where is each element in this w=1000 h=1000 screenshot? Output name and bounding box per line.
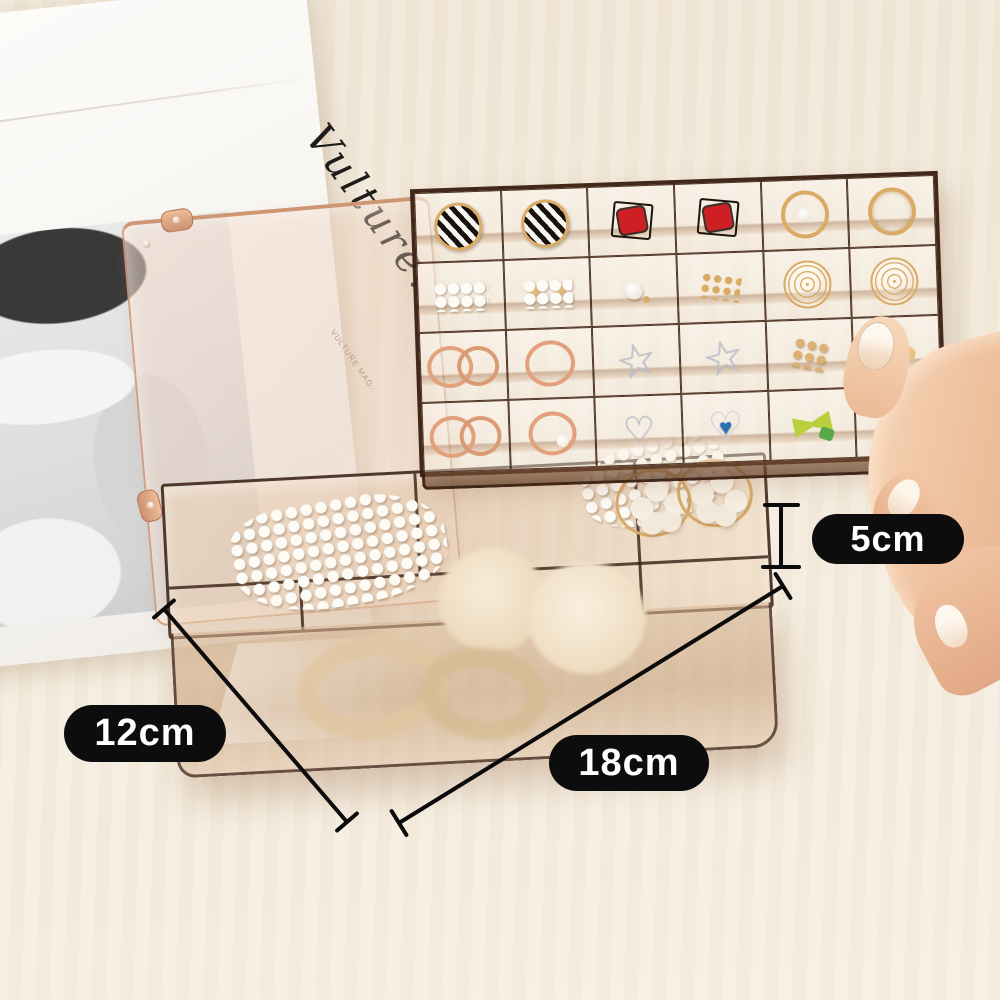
tray-cell (681, 391, 770, 464)
tray-cell (592, 324, 681, 397)
striped-circle-earring (502, 188, 589, 259)
gold-hoop-earring (848, 176, 935, 247)
gold-hoop-pearl-earring (762, 179, 849, 250)
rose-gold-hoops (422, 401, 509, 472)
rose-gold-hoop (507, 328, 594, 399)
red-square-earring (675, 182, 762, 253)
tray-cell (419, 330, 508, 403)
blue-gem-heart-earring (682, 392, 769, 463)
hinge-screw-icon (172, 216, 180, 224)
dimension-label-5cm: 5cm (812, 514, 964, 564)
rose-gold-hoop-pearl (509, 398, 596, 469)
silver-star-earring (593, 325, 680, 396)
tray-cell (674, 181, 763, 254)
tray-cell (768, 388, 857, 461)
fur-pompom (528, 562, 646, 674)
tray-cell (506, 327, 595, 400)
tray-cell (763, 248, 852, 321)
tray-cell (765, 318, 854, 391)
gold-wire-ball-earring (851, 246, 938, 317)
green-bow-earring (769, 389, 856, 460)
tray-cell (508, 397, 597, 470)
pearl-cluster (418, 261, 505, 332)
tray-cell (850, 245, 939, 318)
tray-cell (587, 184, 676, 257)
dimension-label-18cm: 18cm (549, 735, 709, 791)
tray-cell (761, 178, 850, 251)
gold-wire-ball-earring (764, 249, 851, 320)
red-square-earring (588, 185, 675, 256)
pearl-stud-earring (591, 255, 678, 326)
tray-cell (501, 187, 590, 260)
tray-cell (847, 175, 936, 248)
dimension-label-12cm: 12cm (64, 705, 226, 762)
silver-star-earring (680, 322, 767, 393)
gold-drop-earrings (766, 319, 853, 390)
rose-gold-hoops (420, 331, 507, 402)
hinge-screw-icon (146, 501, 155, 510)
silver-heart-earring (596, 395, 683, 466)
tray-cell (595, 394, 684, 467)
tray-cell (679, 321, 768, 394)
tray-cell (421, 400, 510, 473)
striped-circle-earring (415, 191, 502, 262)
tray-cell (417, 260, 506, 333)
product-photo-jewelry-organizer: Vulture. VULTURE MAG. (0, 0, 1000, 1000)
tray-cell (503, 257, 592, 330)
tray-cell (414, 190, 503, 263)
lid-screw-icon (143, 240, 152, 249)
magazine-page-edge (0, 77, 310, 142)
tray-cell (590, 254, 679, 327)
lid-hinge-knuckle (159, 207, 194, 234)
tray-cell (676, 251, 765, 324)
gold-stud-earrings (677, 252, 764, 323)
pearl-gold-cluster (504, 258, 591, 329)
